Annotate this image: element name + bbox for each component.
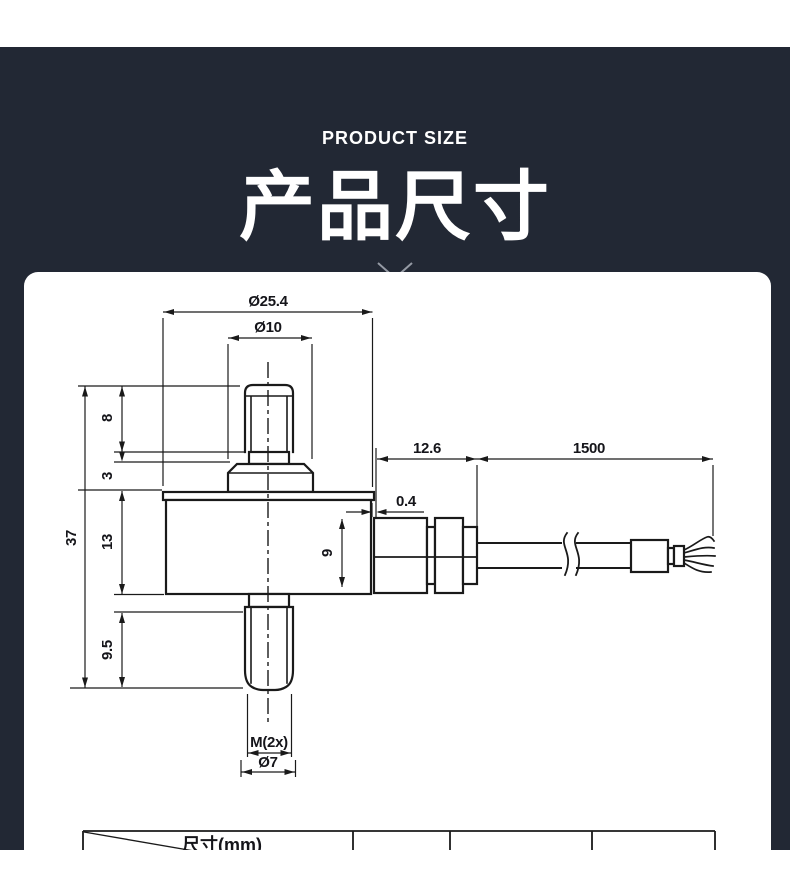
dim-label-connector-diameter: 9	[319, 549, 336, 557]
sensor-outline	[163, 385, 715, 690]
technical-drawing: Ø25.4 Ø10 12.6 1500 0.4 M(2x) Ø7 37 8 3 …	[0, 0, 790, 850]
dim-label-top-stud-length: 8	[99, 414, 116, 422]
table-corner-header: 尺寸(mm)	[182, 834, 262, 850]
dim-label-thread-spec: M(2x)	[250, 734, 288, 751]
wire-ends	[684, 537, 715, 572]
dim-label-connector-length: 12.6	[413, 440, 441, 457]
dim-label-boss-diameter: Ø10	[254, 319, 281, 336]
dim-label-cable-length: 1500	[573, 440, 605, 457]
dim-label-bottom-stud-length: 9.5	[99, 640, 116, 660]
dim-label-boss-height: 3	[99, 472, 116, 480]
dim-label-body-height: 13	[99, 534, 116, 550]
dim-label-flange-diameter: Ø25.4	[248, 293, 288, 310]
dim-label-stud-diameter: Ø7	[258, 754, 277, 771]
size-table	[83, 831, 715, 850]
dim-label-overall-height: 37	[63, 530, 80, 546]
dim-label-flange-lip: 0.4	[396, 493, 417, 510]
